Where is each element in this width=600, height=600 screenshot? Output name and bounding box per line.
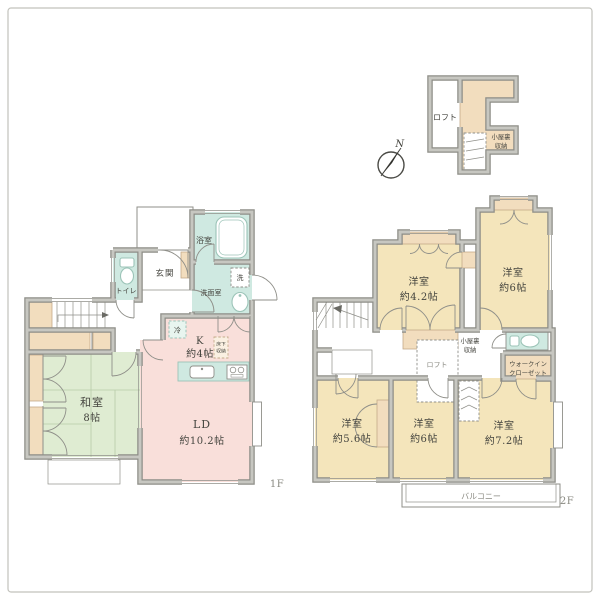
hall-closet-a — [28, 331, 90, 351]
attic-label-2: 収納 — [464, 345, 477, 354]
washitsu-name: 和室 — [80, 395, 104, 409]
floorplan-page: ロフト 小屋裏 収納 N — [0, 0, 600, 600]
balcony: バルコニー — [402, 484, 560, 507]
floor1-label: 1F — [270, 479, 284, 490]
wic-label-2: クローゼット — [509, 368, 547, 377]
bed5-size: 約7.2帖 — [485, 434, 523, 447]
underfloor-label-2: 収納 — [216, 348, 226, 355]
toilet-fixture-1f — [120, 258, 134, 284]
loft-label-2f: ロフト — [427, 361, 448, 369]
kitchen-size: 約4帖 — [186, 347, 214, 360]
bed5-name: 洋室 — [494, 419, 515, 432]
genkan-label: 玄関 — [155, 268, 174, 279]
floor2-label: 2F — [560, 496, 574, 507]
bed1-name: 洋室 — [409, 275, 430, 288]
loft-attic-label-1: 小屋裏 — [492, 132, 512, 141]
north-label: N — [394, 139, 405, 150]
fridge-box: 冷 — [169, 321, 186, 338]
washitsu-size: 8帖 — [83, 411, 100, 424]
toilet-fixture-2f — [510, 335, 539, 347]
senmen-sink — [232, 293, 248, 312]
kitchen-counter — [178, 362, 249, 381]
stove — [227, 365, 247, 379]
bay-window-1f — [253, 402, 262, 446]
balcony-label: バルコニー — [461, 492, 501, 501]
loft-area-2f: ロフト — [417, 340, 458, 402]
entrance-porch — [137, 207, 193, 250]
loft-ladder — [464, 133, 486, 170]
bathtub — [216, 217, 247, 258]
wic-label-1: ウォークイン — [509, 360, 547, 368]
bed3-size: 約5.6帖 — [333, 432, 371, 445]
washitsu-closet-b — [28, 407, 43, 455]
bed4-size: 約6帖 — [410, 432, 438, 445]
loft-attic-label-2: 収納 — [495, 141, 508, 150]
underfloor-label-1: 床下 — [216, 341, 226, 348]
bed2-size: 約6帖 — [499, 281, 527, 294]
loft-ladder-2f — [459, 381, 479, 421]
kitchen-name: K — [196, 336, 204, 347]
ld-size: 約10.2帖 — [179, 434, 224, 447]
ld-name: LD — [193, 418, 211, 431]
loft-label: ロフト — [433, 113, 457, 122]
hall-closet-b — [93, 331, 112, 351]
bay-window-2f — [554, 402, 563, 448]
senmen-label: 洗面室 — [201, 288, 222, 297]
fridge-label: 冷 — [174, 326, 181, 335]
underfloor-storage-box: 床下 収納 — [214, 337, 228, 358]
toilet-label-1f: トイレ — [116, 287, 137, 295]
washer-box: 洗 — [231, 268, 249, 287]
attic-label-1: 小屋裏 — [461, 336, 481, 345]
washitsu-closet-a — [28, 355, 43, 401]
bed2-name: 洋室 — [503, 266, 524, 279]
kitchen-sink — [190, 366, 214, 378]
bed3-name: 洋室 — [342, 417, 363, 430]
stairs-storage — [28, 302, 52, 328]
bath-label: 浴室 — [196, 235, 212, 245]
bed1-size: 約4.2帖 — [400, 290, 438, 303]
floorplan-svg: ロフト 小屋裏 収納 N — [0, 0, 600, 600]
bed4-name: 洋室 — [414, 417, 435, 430]
hall-closet-2f — [332, 350, 372, 374]
washer-label: 洗 — [237, 273, 244, 282]
terrace — [48, 460, 120, 484]
